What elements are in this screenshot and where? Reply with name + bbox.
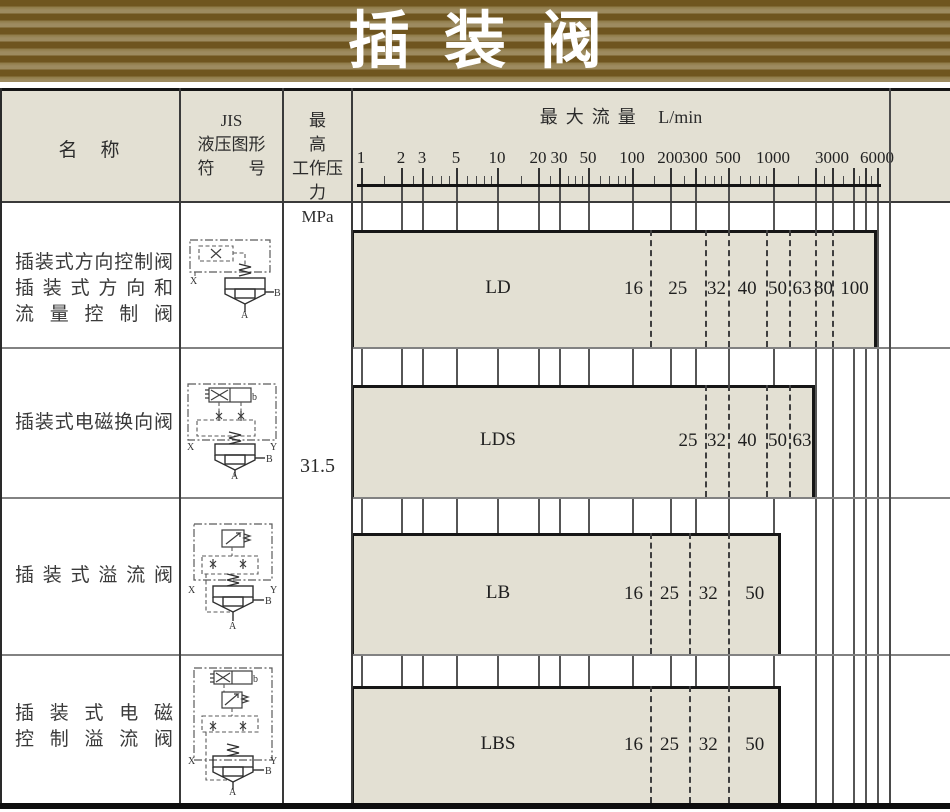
column-divider	[889, 88, 891, 803]
bar-size-label: 80	[814, 278, 833, 300]
axis-minor-tick	[654, 176, 655, 184]
axis-major-tick	[853, 168, 855, 184]
axis-minor-tick	[798, 176, 799, 184]
row2-name-line1: 插装式电磁换向阀	[15, 410, 173, 436]
axis-tick-label: 50	[580, 148, 597, 168]
column-header-symbol: JIS 液压图形 符 号	[181, 109, 282, 181]
row1-name-line1: 插装式方向控制阀	[15, 250, 173, 276]
bar-size-divider	[650, 686, 652, 803]
bar-size-label: 25	[660, 734, 679, 756]
axis-minor-tick	[432, 176, 433, 184]
row-separator	[0, 497, 283, 499]
axis-minor-tick	[750, 176, 751, 184]
flow-header-title: 最大流量	[540, 107, 644, 127]
bar-size-label: 63	[792, 278, 811, 300]
bar-size-label: 50	[745, 734, 764, 756]
axis-minor-tick	[521, 176, 522, 184]
axis-minor-tick	[449, 176, 450, 184]
axis-tick-stub	[361, 187, 363, 201]
port-label-a: A	[229, 787, 237, 796]
axis-minor-tick	[441, 176, 442, 184]
axis-tick-stub	[853, 187, 855, 201]
axis-major-tick	[588, 168, 590, 184]
axis-tick-label: 1	[357, 148, 366, 168]
flow-header-unit: L/min	[658, 107, 702, 127]
axis-minor-tick	[625, 176, 626, 184]
bar-size-label: 25	[660, 583, 679, 605]
row4-name-line2: 控制溢流阀	[15, 727, 173, 753]
bar-size-label: 32	[699, 583, 718, 605]
port-label-b: B	[266, 454, 273, 465]
axis-line	[357, 184, 881, 187]
axis-tick-stub	[877, 187, 879, 201]
bar-size-divider	[789, 230, 791, 347]
port-label-b: B	[265, 766, 272, 777]
symbol-header-line1: JIS	[181, 109, 282, 133]
axis-minor-tick	[871, 176, 872, 184]
axis-minor-tick	[476, 176, 477, 184]
header-bottom-border	[0, 201, 950, 203]
bar-size-label: 32	[707, 278, 726, 300]
axis-tick-label: 5	[452, 148, 461, 168]
axis-tick-stub	[815, 187, 817, 201]
row1-name-line3: 流量控制阀	[15, 302, 173, 328]
bar-size-divider	[728, 686, 730, 803]
axis-major-tick	[538, 168, 540, 184]
axis-major-tick	[497, 168, 499, 184]
axis-minor-tick	[766, 176, 767, 184]
axis-tick-stub	[588, 187, 590, 201]
port-label-y: Y	[270, 585, 277, 596]
bar-size-divider	[650, 533, 652, 654]
axis-major-tick	[456, 168, 458, 184]
axis-major-tick	[877, 168, 879, 184]
row3-name-line1: 插装式溢流阀	[15, 563, 173, 589]
axis-tick-stub	[401, 187, 403, 201]
axis-major-tick	[832, 168, 834, 184]
port-label-b: B	[265, 596, 272, 607]
bar-model-label: LB	[486, 582, 510, 604]
bar-model-label: LBS	[481, 733, 516, 755]
port-label-b: B	[274, 288, 281, 299]
row2-name: 插装式电磁换向阀	[15, 410, 173, 436]
row-separator	[352, 497, 950, 499]
row4-name-line1: 插装式电磁	[15, 701, 173, 727]
column-divider	[351, 88, 353, 803]
axis-tick-label: 1000	[756, 148, 790, 168]
axis-major-tick	[815, 168, 817, 184]
axis-tick-label: 300	[682, 148, 708, 168]
axis-minor-tick	[491, 176, 492, 184]
row-separator	[352, 654, 950, 656]
axis-major-tick	[632, 168, 634, 184]
pressure-header-line3: MPa	[284, 205, 351, 229]
symbol-header-line3: 符 号	[181, 157, 282, 181]
solenoid-label-b: b	[252, 392, 257, 403]
axis-tick-stub	[695, 187, 697, 201]
flow-gridline	[877, 203, 879, 803]
table-left-border	[0, 88, 2, 803]
axis-minor-tick	[684, 176, 685, 184]
bar-size-label: 32	[699, 734, 718, 756]
axis-tick-label: 3	[418, 148, 427, 168]
axis-tick-label: 2	[397, 148, 406, 168]
axis-major-tick	[773, 168, 775, 184]
bar-size-label: 16	[624, 734, 643, 756]
axis-tick-stub	[832, 187, 834, 201]
bar-size-label: 100	[840, 278, 869, 300]
axis-tick-label: 10	[489, 148, 506, 168]
bar-size-label: 25	[678, 430, 697, 452]
column-header-pressure: 最 高 工作压力 MPa	[284, 109, 351, 229]
axis-major-tick	[670, 168, 672, 184]
axis-minor-tick	[721, 176, 722, 184]
max-pressure-value: 31.5	[283, 455, 352, 478]
table-bottom-border	[0, 803, 950, 809]
axis-tick-stub	[559, 187, 561, 201]
axis-major-tick	[422, 168, 424, 184]
pressure-header-line1: 最 高	[284, 109, 351, 157]
table-top-border	[0, 88, 950, 91]
axis-minor-tick	[582, 176, 583, 184]
axis-tick-stub	[456, 187, 458, 201]
axis-tick-label: 3000	[815, 148, 849, 168]
bar-size-label: 16	[624, 278, 643, 300]
axis-major-tick	[401, 168, 403, 184]
bar-model-label: LD	[485, 277, 510, 299]
axis-minor-tick	[740, 176, 741, 184]
row-separator	[352, 347, 950, 349]
axis-major-tick	[361, 168, 363, 184]
port-label-a: A	[231, 471, 239, 480]
axis-tick-stub	[538, 187, 540, 201]
column-divider	[282, 88, 284, 803]
bar-size-divider	[728, 230, 730, 347]
axis-minor-tick	[824, 176, 825, 184]
axis-tick-stub	[422, 187, 424, 201]
axis-minor-tick	[575, 176, 576, 184]
catalog-page: 插装阀 名 称 JIS 液压图形 符 号 最 高 工作压力 MPa 最大流量 L…	[0, 0, 950, 812]
axis-tick-label: 200	[657, 148, 683, 168]
axis-minor-tick	[600, 176, 601, 184]
axis-minor-tick	[467, 176, 468, 184]
axis-major-tick	[728, 168, 730, 184]
bar-model-label: LDS	[480, 429, 516, 451]
row4-name: 插装式电磁 控制溢流阀	[15, 701, 173, 753]
axis-tick-label: 20	[530, 148, 547, 168]
port-label-x: X	[190, 276, 198, 287]
bar-size-label: 25	[668, 278, 687, 300]
axis-minor-tick	[859, 176, 860, 184]
axis-major-tick	[559, 168, 561, 184]
axis-major-tick	[865, 168, 867, 184]
axis-minor-tick	[384, 176, 385, 184]
port-label-x: X	[188, 585, 196, 596]
axis-minor-tick	[618, 176, 619, 184]
port-label-x: X	[187, 442, 195, 453]
bar-size-divider	[728, 533, 730, 654]
bar-size-label: 16	[624, 583, 643, 605]
symbol-header-line2: 液压图形	[181, 133, 282, 157]
axis-minor-tick	[609, 176, 610, 184]
port-label-a: A	[241, 310, 249, 319]
column-header-name: 名 称	[0, 135, 180, 162]
bar-size-divider	[689, 686, 691, 803]
solenoid-label-b: b	[253, 674, 258, 685]
bar-size-label: 40	[738, 430, 757, 452]
axis-tick-label: 30	[551, 148, 568, 168]
column-header-flow: 最大流量 L/min	[352, 103, 890, 129]
axis-tick-stub	[670, 187, 672, 201]
axis-minor-tick	[714, 176, 715, 184]
port-label-a: A	[229, 621, 237, 630]
axis-tick-stub	[632, 187, 634, 201]
column-divider	[179, 88, 181, 803]
axis-tick-label: 500	[715, 148, 741, 168]
bar-size-label: 50	[768, 278, 787, 300]
cartridge-solenoid-relief-valve-symbol-icon: b X Y B A	[186, 666, 281, 796]
axis-tick-stub	[728, 187, 730, 201]
cartridge-solenoid-directional-valve-symbol-icon: b X Y B A	[183, 380, 283, 480]
bar-size-divider	[689, 533, 691, 654]
axis-minor-tick	[484, 176, 485, 184]
axis-minor-tick	[705, 176, 706, 184]
axis-major-tick	[695, 168, 697, 184]
axis-minor-tick	[413, 176, 414, 184]
bar-size-divider	[728, 385, 730, 497]
port-label-x: X	[188, 756, 196, 767]
row-separator	[0, 654, 283, 656]
bar-size-label: 50	[745, 583, 764, 605]
row1-name-line2: 插装式方向和	[15, 276, 173, 302]
row1-name: 插装式方向控制阀 插装式方向和 流量控制阀	[15, 250, 173, 328]
bar-size-divider	[789, 385, 791, 497]
port-label-y: Y	[270, 442, 277, 453]
axis-tick-stub	[773, 187, 775, 201]
axis-tick-stub	[865, 187, 867, 201]
axis-minor-tick	[843, 176, 844, 184]
axis-minor-tick	[550, 176, 551, 184]
bar-size-divider	[650, 230, 652, 347]
bar-size-label: 32	[707, 430, 726, 452]
pressure-header-line2: 工作压力	[284, 157, 351, 205]
bar-size-label: 40	[738, 278, 757, 300]
bar-size-label: 63	[792, 430, 811, 452]
cartridge-directional-valve-symbol-icon: X B A	[186, 234, 281, 319]
bar-size-label: 50	[768, 430, 787, 452]
axis-minor-tick	[759, 176, 760, 184]
row-separator	[0, 347, 283, 349]
axis-tick-label: 100	[619, 148, 645, 168]
row3-name: 插装式溢流阀	[15, 563, 173, 589]
cartridge-relief-valve-symbol-icon: X Y B A	[186, 520, 281, 630]
axis-tick-stub	[497, 187, 499, 201]
axis-minor-tick	[568, 176, 569, 184]
